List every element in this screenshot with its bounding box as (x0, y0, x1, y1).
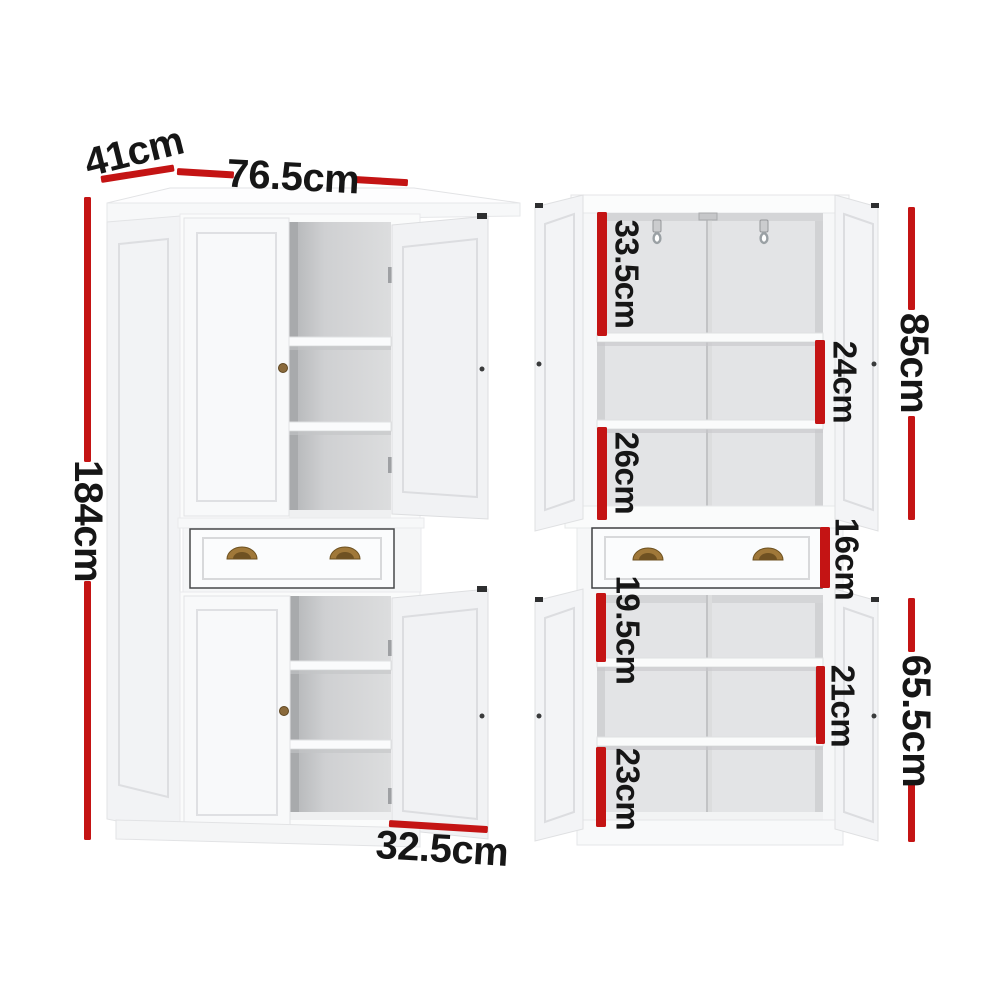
cabinet-right-view-illustration (535, 195, 879, 845)
dim-line-lower-section-bottom (908, 783, 915, 842)
dim-label-lower-top-compartment: 19.5cm (612, 576, 645, 685)
dim-line-upper-section-bottom (908, 416, 915, 520)
dim-label-upper-middle-compartment: 24cm (829, 341, 862, 423)
dimension-diagram: 41cm 76.5cm 184cm 32.5cm 33.5cm 24cm 26c… (0, 0, 1000, 1000)
door-knob-icon (872, 714, 877, 719)
dim-bar-lower-bottom-compartment (596, 747, 606, 827)
dim-label-internal-width: 32.5cm (375, 825, 510, 873)
left-upper-open-door (388, 213, 488, 519)
shelf-bracket-icon (699, 213, 717, 220)
dim-label-height: 184cm (68, 460, 108, 582)
left-mid-band (178, 518, 424, 528)
left-upper-closed-door (184, 218, 289, 516)
hanging-hook-icon (653, 220, 661, 243)
dim-label-upper-bottom-compartment: 26cm (611, 432, 644, 514)
door-knob-icon (279, 364, 288, 373)
left-lower-interior (290, 596, 391, 820)
dim-line-height-top (84, 197, 91, 462)
dim-line-height-bottom (84, 581, 91, 840)
dim-label-width: 76.5cm (226, 154, 361, 201)
dim-label-upper-top-compartment: 33.5cm (611, 220, 644, 329)
door-knob-icon (480, 714, 485, 719)
left-side-panel (107, 216, 180, 834)
dim-label-drawer-height: 16cm (831, 518, 864, 600)
door-knob-icon (280, 707, 289, 716)
hanging-hook-icon (760, 220, 768, 243)
door-knob-icon (480, 367, 485, 372)
dim-label-lower-section-height: 65.5cm (896, 655, 936, 788)
left-drawer (183, 528, 421, 592)
dim-bar-upper-top-compartment (597, 212, 607, 336)
dim-bar-lower-top-compartment (596, 593, 606, 662)
door-knob-icon (537, 714, 542, 719)
left-upper-interior (289, 222, 391, 519)
left-lower-closed-door (184, 596, 290, 829)
left-lower-open-door (388, 586, 488, 839)
dim-line-lower-section-top (908, 598, 915, 652)
dim-line-upper-section-top (908, 207, 915, 310)
dim-bar-upper-bottom-compartment (597, 427, 607, 520)
dim-label-lower-middle-compartment: 21cm (827, 665, 860, 747)
right-top-panel (571, 195, 849, 213)
door-knob-icon (537, 362, 542, 367)
right-upper-left-door (535, 195, 583, 531)
cabinet-left-view-illustration (107, 188, 520, 847)
dim-label-lower-bottom-compartment: 23cm (612, 748, 645, 830)
door-knob-icon (872, 362, 877, 367)
right-lower-left-door (535, 589, 583, 841)
dim-bar-upper-middle-compartment (815, 340, 825, 424)
dim-label-upper-section-height: 85cm (894, 313, 934, 413)
